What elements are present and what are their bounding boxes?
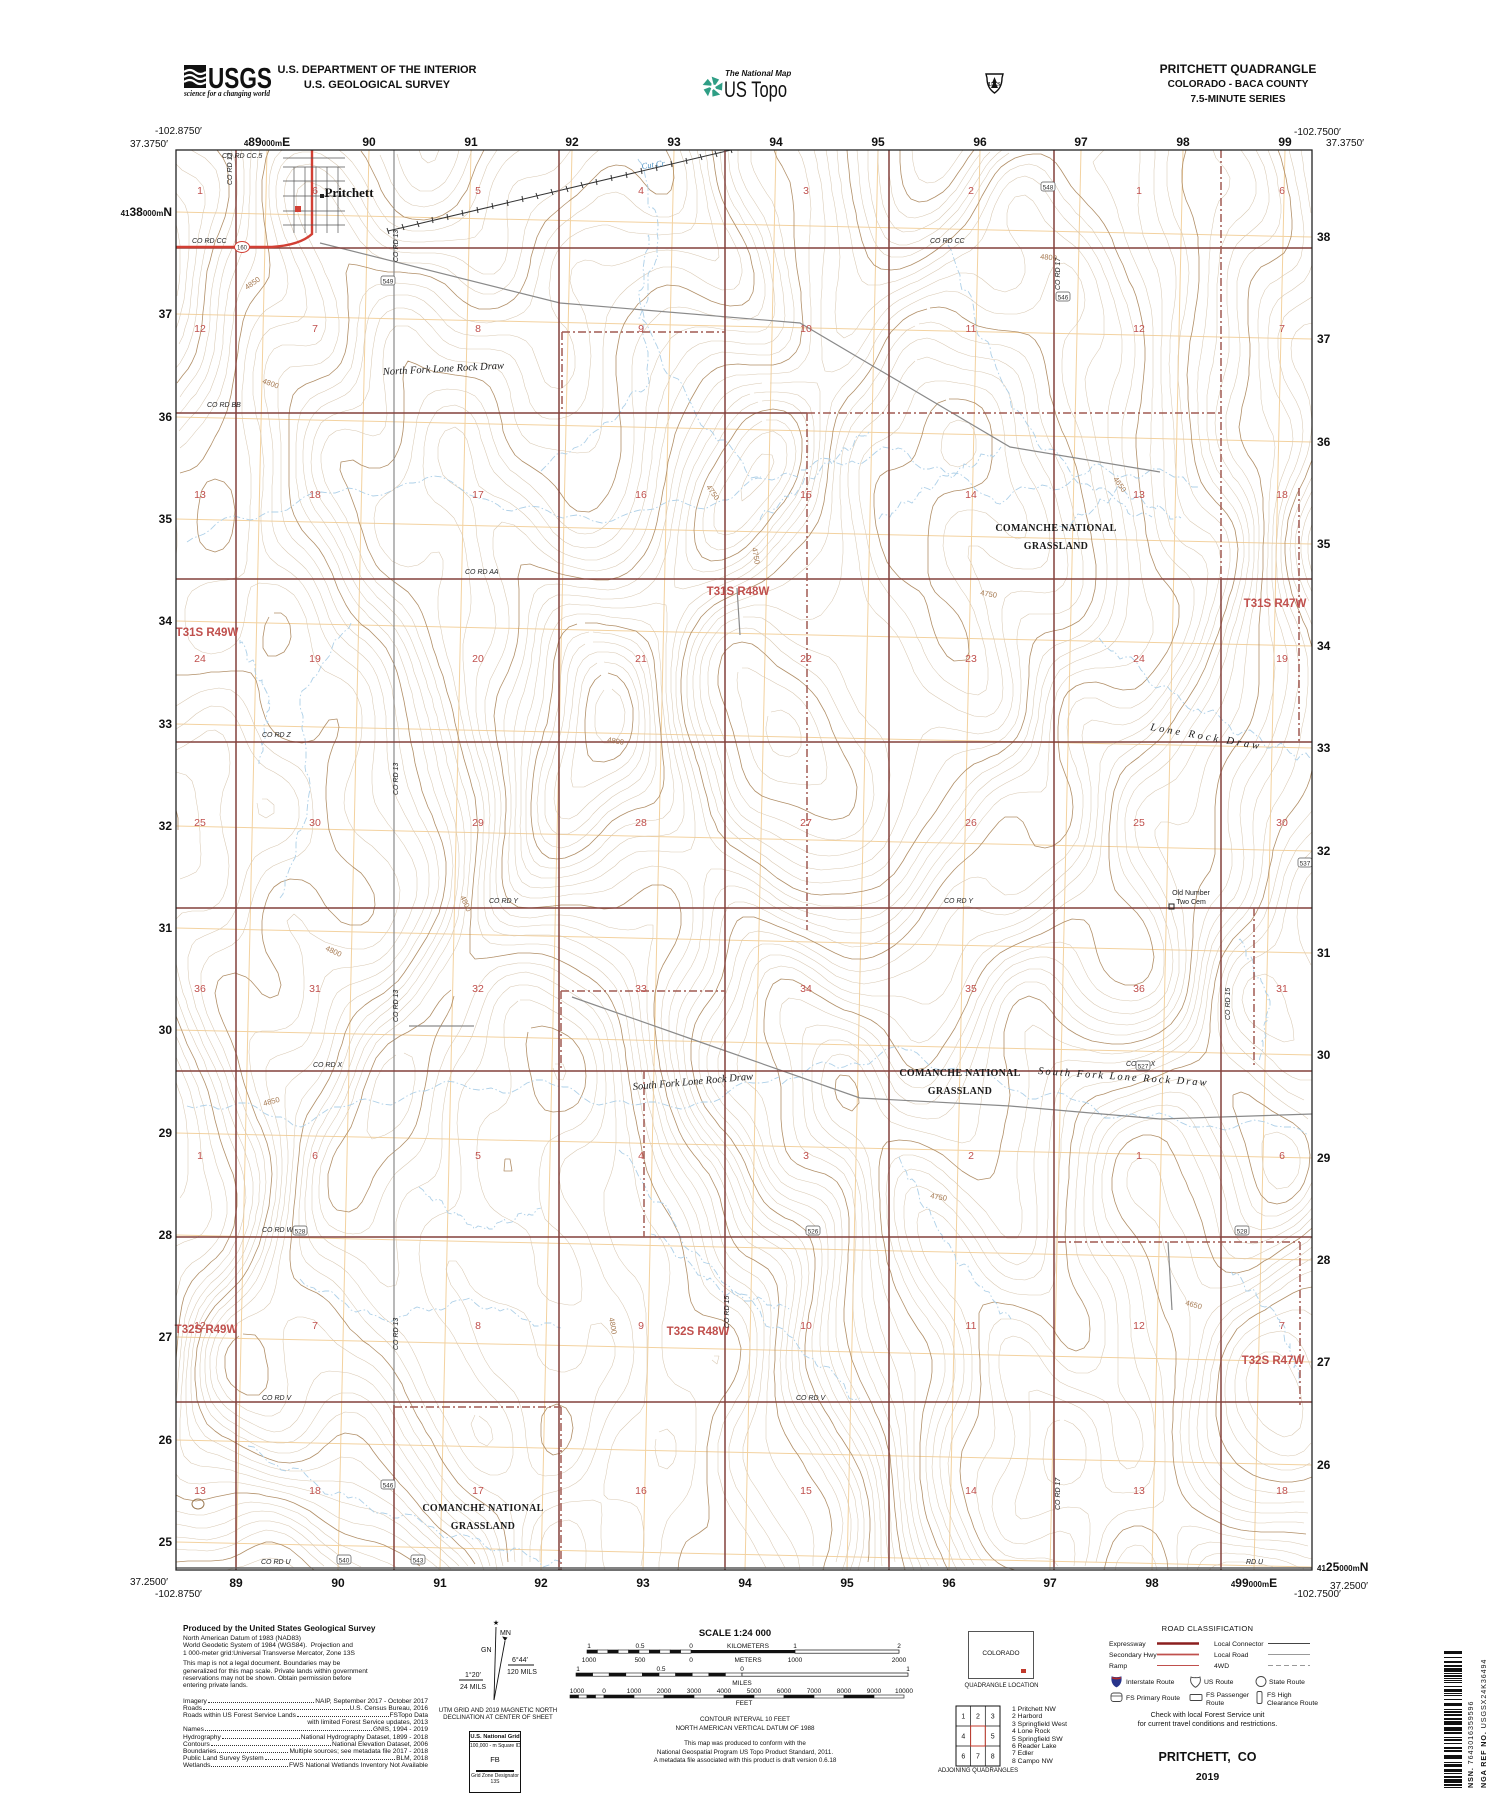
svg-text:37: 37: [159, 307, 173, 321]
svg-text:98: 98: [1145, 1576, 1159, 1590]
svg-text:13: 13: [194, 1485, 206, 1497]
svg-text:36: 36: [1317, 435, 1331, 449]
svg-text:2: 2: [976, 1714, 980, 1721]
svg-text:1: 1: [197, 1150, 203, 1162]
svg-text:31: 31: [309, 983, 321, 995]
svg-text:16: 16: [635, 489, 647, 501]
svg-text:1000: 1000: [582, 1657, 597, 1664]
svg-text:CO RD 17: CO RD 17: [1055, 1477, 1062, 1510]
svg-text:18: 18: [1276, 1485, 1288, 1497]
svg-text:CO RD V: CO RD V: [796, 1395, 827, 1402]
svg-text:537: 537: [1300, 861, 1311, 868]
svg-text:4750: 4750: [750, 547, 762, 565]
svg-text:528: 528: [1237, 1229, 1248, 1236]
svg-text:Lone Rock Draw: Lone Rock Draw: [1148, 722, 1262, 753]
svg-text:CO RD W: CO RD W: [262, 1227, 295, 1234]
svg-text:FS High: FS High: [1267, 1692, 1292, 1699]
svg-text:9: 9: [638, 323, 644, 335]
svg-text:35: 35: [159, 512, 173, 526]
svg-text:28: 28: [635, 817, 647, 829]
svg-text:29: 29: [1317, 1151, 1331, 1165]
svg-text:4138000mN: 4138000mN: [121, 205, 172, 219]
svg-text:Expressway: Expressway: [1109, 1641, 1146, 1648]
svg-text:1: 1: [906, 1666, 910, 1673]
svg-text:28: 28: [159, 1228, 173, 1242]
svg-text:34: 34: [159, 614, 173, 628]
svg-text:489000mE: 489000mE: [244, 135, 290, 149]
svg-text:33: 33: [1317, 741, 1331, 755]
svg-text:T32S R49W: T32S R49W: [175, 1324, 238, 1336]
svg-text:31: 31: [159, 921, 173, 935]
svg-text:30: 30: [159, 1023, 173, 1037]
svg-text:7000: 7000: [807, 1688, 822, 1695]
svg-text:6: 6: [1279, 1150, 1285, 1162]
svg-text:CO RD U: CO RD U: [261, 1559, 292, 1566]
svg-text:37.3750′: 37.3750′: [1326, 138, 1364, 149]
svg-text:0.5: 0.5: [635, 1643, 644, 1650]
svg-text:COMANCHE NATIONAL: COMANCHE NATIONAL: [899, 1068, 1020, 1079]
svg-text:4WD: 4WD: [1214, 1663, 1229, 1670]
svg-text:526: 526: [808, 1229, 819, 1236]
svg-text:GRASSLAND: GRASSLAND: [451, 1521, 515, 1532]
svg-text:24: 24: [1133, 653, 1145, 665]
svg-text:11: 11: [966, 1320, 977, 1332]
svg-text:4125000mN: 4125000mN: [1317, 1560, 1368, 1574]
svg-text:91: 91: [464, 135, 478, 149]
svg-text:25: 25: [1133, 817, 1145, 829]
svg-text:38: 38: [1317, 230, 1331, 244]
svg-text:CO RD CC: CO RD CC: [930, 238, 966, 245]
svg-text:92: 92: [534, 1576, 548, 1590]
svg-text:33: 33: [159, 717, 173, 731]
svg-text:5000: 5000: [747, 1688, 762, 1695]
svg-text:1: 1: [576, 1666, 580, 1673]
svg-text:CO RD 13: CO RD 13: [393, 230, 400, 262]
svg-text:13: 13: [1133, 489, 1145, 501]
svg-text:4750: 4750: [980, 588, 998, 600]
svg-text:CO RD Z: CO RD Z: [262, 732, 292, 739]
svg-text:15: 15: [800, 489, 812, 501]
svg-text:CO RD 13: CO RD 13: [393, 990, 400, 1022]
svg-text:1: 1: [587, 1643, 591, 1650]
svg-text:-102.7500′: -102.7500′: [1294, 127, 1341, 138]
svg-text:7: 7: [1279, 1320, 1285, 1332]
svg-text:500: 500: [635, 1657, 646, 1664]
svg-text:6°44′: 6°44′: [512, 1656, 528, 1664]
svg-text:12: 12: [194, 323, 206, 335]
svg-text:549: 549: [383, 279, 394, 286]
svg-text:36: 36: [1133, 983, 1145, 995]
svg-text:4000: 4000: [717, 1688, 732, 1695]
svg-text:4800: 4800: [607, 1317, 619, 1335]
svg-text:METERS: METERS: [734, 1657, 762, 1664]
svg-text:CO RD 13: CO RD 13: [393, 1318, 400, 1350]
svg-text:CO RD AA: CO RD AA: [465, 569, 499, 576]
svg-text:1: 1: [1136, 185, 1142, 197]
svg-text:6000: 6000: [777, 1688, 792, 1695]
svg-text:CO RD 15: CO RD 15: [724, 1296, 731, 1328]
svg-text:KILOMETERS: KILOMETERS: [727, 1643, 770, 1650]
svg-text:4750: 4750: [704, 483, 721, 502]
svg-text:Ramp: Ramp: [1109, 1663, 1127, 1670]
svg-text:2000: 2000: [892, 1657, 907, 1664]
svg-text:MILES: MILES: [732, 1680, 752, 1687]
svg-text:5: 5: [991, 1734, 995, 1741]
svg-text:NSN. 7643016359596: NSN. 7643016359596: [1466, 1701, 1475, 1788]
svg-text:CO RD CC: CO RD CC: [192, 238, 228, 245]
svg-text:4800: 4800: [458, 894, 473, 913]
svg-text:546: 546: [383, 1483, 394, 1490]
svg-text:1: 1: [793, 1643, 797, 1650]
svg-text:36: 36: [194, 983, 206, 995]
svg-text:CO RD Y: CO RD Y: [489, 898, 519, 905]
svg-text:27: 27: [1317, 1355, 1331, 1369]
svg-text:89: 89: [229, 1576, 243, 1590]
svg-text:11: 11: [966, 323, 977, 335]
svg-text:4800: 4800: [1040, 252, 1057, 262]
svg-text:90: 90: [331, 1576, 345, 1590]
svg-text:1: 1: [961, 1714, 965, 1721]
svg-text:23: 23: [965, 653, 977, 665]
svg-text:GRASSLAND: GRASSLAND: [1024, 541, 1088, 552]
svg-text:CO RD 15: CO RD 15: [1225, 988, 1232, 1020]
svg-text:CO RD X: CO RD X: [313, 1062, 343, 1069]
svg-text:4800: 4800: [324, 944, 343, 959]
svg-text:21: 21: [635, 653, 647, 665]
svg-text:35: 35: [965, 983, 977, 995]
svg-text:10: 10: [800, 323, 812, 335]
svg-text:8: 8: [475, 323, 481, 335]
svg-text:26: 26: [159, 1433, 173, 1447]
svg-text:Local Road: Local Road: [1214, 1652, 1249, 1659]
svg-text:3: 3: [991, 1714, 995, 1721]
svg-text:0: 0: [689, 1643, 693, 1650]
svg-text:546: 546: [1058, 295, 1069, 302]
svg-text:17: 17: [472, 1485, 484, 1497]
svg-text:19: 19: [309, 653, 321, 665]
svg-text:14: 14: [965, 489, 977, 501]
svg-text:36: 36: [159, 410, 173, 424]
svg-text:13: 13: [194, 489, 206, 501]
svg-text:4850: 4850: [243, 275, 262, 292]
svg-text:-102.8750′: -102.8750′: [155, 126, 202, 137]
svg-text:10: 10: [800, 1320, 812, 1332]
svg-text:94: 94: [769, 135, 783, 149]
svg-text:0: 0: [602, 1688, 606, 1695]
svg-text:RD U: RD U: [1246, 1559, 1264, 1566]
svg-text:25: 25: [194, 817, 206, 829]
svg-text:91: 91: [433, 1576, 447, 1590]
svg-text:24: 24: [194, 653, 206, 665]
svg-text:31: 31: [1317, 946, 1331, 960]
svg-text:FS Passenger: FS Passenger: [1206, 1692, 1250, 1699]
svg-text:33: 33: [635, 983, 647, 995]
svg-text:26: 26: [965, 817, 977, 829]
svg-text:32: 32: [159, 819, 173, 833]
svg-text:NGA REF NO. USGSX24K36494: NGA REF NO. USGSX24K36494: [1479, 1659, 1488, 1788]
svg-text:T31S R49W: T31S R49W: [176, 627, 239, 639]
svg-text:95: 95: [871, 135, 885, 149]
svg-text:29: 29: [159, 1126, 173, 1140]
svg-text:27: 27: [800, 817, 812, 829]
svg-text:-102.8750′: -102.8750′: [155, 1589, 202, 1600]
svg-text:26: 26: [1317, 1458, 1331, 1472]
svg-text:0: 0: [689, 1657, 693, 1664]
svg-text:25: 25: [159, 1535, 173, 1549]
svg-text:13: 13: [1133, 1485, 1145, 1497]
svg-text:3000: 3000: [687, 1688, 702, 1695]
svg-text:528: 528: [295, 1229, 306, 1236]
svg-text:1000: 1000: [788, 1657, 803, 1664]
svg-text:2: 2: [897, 1643, 901, 1650]
svg-text:GN: GN: [481, 1647, 492, 1654]
svg-text:7: 7: [976, 1754, 980, 1761]
svg-text:12: 12: [1133, 1320, 1145, 1332]
svg-text:35: 35: [1317, 537, 1331, 551]
svg-text:16: 16: [635, 1485, 647, 1497]
svg-text:37.2500′: 37.2500′: [130, 1577, 168, 1588]
svg-text:2: 2: [968, 1150, 974, 1162]
svg-text:4650: 4650: [1184, 1298, 1202, 1311]
svg-text:1°20′: 1°20′: [465, 1671, 481, 1679]
svg-text:96: 96: [973, 135, 987, 149]
svg-text:7: 7: [312, 323, 318, 335]
svg-text:Route: Route: [1206, 1700, 1224, 1707]
svg-text:27: 27: [159, 1330, 173, 1344]
svg-text:2: 2: [968, 185, 974, 197]
svg-text:T31S R47W: T31S R47W: [1244, 598, 1307, 610]
svg-text:4850: 4850: [262, 1095, 280, 1108]
svg-text:2000: 2000: [657, 1688, 672, 1695]
svg-text:T32S R47W: T32S R47W: [1242, 1355, 1305, 1367]
svg-text:19: 19: [1276, 653, 1288, 665]
svg-text:Pritchett: Pritchett: [324, 185, 374, 200]
svg-text:30: 30: [309, 817, 321, 829]
svg-text:30: 30: [1317, 1048, 1331, 1062]
svg-text:8: 8: [475, 1320, 481, 1332]
svg-text:95: 95: [840, 1576, 854, 1590]
svg-text:9: 9: [638, 1320, 644, 1332]
svg-text:7: 7: [312, 1320, 318, 1332]
svg-text:0.5: 0.5: [656, 1666, 665, 1673]
svg-text:31: 31: [1276, 983, 1288, 995]
svg-text:US Route: US Route: [1204, 1679, 1234, 1686]
svg-text:T31S R48W: T31S R48W: [707, 586, 770, 598]
svg-text:90: 90: [362, 135, 376, 149]
svg-text:4650: 4650: [1111, 475, 1128, 494]
svg-text:18: 18: [309, 489, 321, 501]
svg-text:6: 6: [312, 185, 318, 197]
svg-text:CO RD Y: CO RD Y: [944, 898, 974, 905]
svg-text:4750: 4750: [930, 1191, 948, 1203]
svg-text:1000: 1000: [570, 1688, 585, 1695]
svg-text:98: 98: [1176, 135, 1190, 149]
svg-text:99: 99: [1278, 135, 1292, 149]
svg-text:MN: MN: [500, 1630, 511, 1637]
svg-text:22: 22: [800, 653, 812, 665]
svg-text:FEET: FEET: [736, 1700, 753, 1705]
svg-text:7: 7: [1279, 323, 1285, 335]
svg-text:1: 1: [197, 185, 203, 197]
svg-text:1: 1: [1136, 1150, 1142, 1162]
svg-text:6: 6: [312, 1150, 318, 1162]
svg-text:4: 4: [638, 1150, 644, 1162]
svg-text:1000: 1000: [627, 1688, 642, 1695]
svg-text:Clearance Route: Clearance Route: [1267, 1700, 1318, 1707]
svg-text:3: 3: [803, 1150, 809, 1162]
svg-text:3: 3: [803, 185, 809, 197]
svg-text:97: 97: [1043, 1576, 1057, 1590]
svg-text:527: 527: [1138, 1064, 1149, 1071]
svg-text:17: 17: [472, 489, 484, 501]
svg-text:CO RD 13: CO RD 13: [393, 763, 400, 795]
svg-text:92: 92: [565, 135, 579, 149]
svg-text:Two Cem: Two Cem: [1176, 899, 1206, 906]
svg-text:10000: 10000: [895, 1688, 913, 1695]
svg-text:FS Primary Route: FS Primary Route: [1126, 1695, 1180, 1702]
svg-text:4: 4: [638, 185, 644, 197]
svg-text:9000: 9000: [867, 1688, 882, 1695]
svg-text:12: 12: [1133, 323, 1145, 335]
svg-text:14: 14: [965, 1485, 977, 1497]
svg-text:37.3750′: 37.3750′: [130, 139, 168, 150]
svg-text:24 MILS: 24 MILS: [460, 1684, 486, 1691]
svg-text:160: 160: [237, 246, 248, 252]
svg-text:37: 37: [1317, 332, 1331, 346]
svg-text:28: 28: [1317, 1253, 1331, 1267]
svg-text:Secondary Hwy: Secondary Hwy: [1109, 1652, 1157, 1659]
svg-text:5: 5: [475, 185, 481, 197]
svg-text:34: 34: [1317, 639, 1331, 653]
svg-text:97: 97: [1074, 135, 1088, 149]
svg-text:Local Connector: Local Connector: [1214, 1641, 1264, 1648]
svg-text:Interstate Route: Interstate Route: [1126, 1679, 1175, 1686]
svg-text:North Fork Lone Rock Draw: North Fork Lone Rock Draw: [382, 361, 505, 378]
svg-text:4800: 4800: [607, 735, 625, 747]
svg-text:★: ★: [493, 1619, 499, 1627]
svg-text:T32S R48W: T32S R48W: [667, 1326, 730, 1338]
svg-text:18: 18: [309, 1485, 321, 1497]
svg-text:30: 30: [1276, 817, 1288, 829]
svg-text:15: 15: [800, 1485, 812, 1497]
svg-text:6: 6: [961, 1754, 965, 1761]
svg-text:32: 32: [472, 983, 484, 995]
svg-text:94: 94: [738, 1576, 752, 1590]
svg-text:120 MILS: 120 MILS: [507, 1669, 537, 1676]
svg-text:0: 0: [740, 1666, 744, 1673]
svg-text:Cut Cr: Cut Cr: [641, 158, 666, 171]
svg-text:93: 93: [667, 135, 681, 149]
svg-text:93: 93: [636, 1576, 650, 1590]
svg-text:34: 34: [800, 983, 812, 995]
svg-text:20: 20: [472, 653, 484, 665]
svg-text:Old Number: Old Number: [1172, 890, 1210, 897]
svg-text:COMANCHE NATIONAL: COMANCHE NATIONAL: [422, 1503, 543, 1514]
svg-text:COMANCHE NATIONAL: COMANCHE NATIONAL: [995, 523, 1116, 534]
svg-text:548: 548: [1043, 185, 1054, 192]
svg-text:499000mE: 499000mE: [1231, 1576, 1277, 1590]
svg-text:5: 5: [475, 1150, 481, 1162]
svg-text:CO RD BB: CO RD BB: [207, 402, 241, 409]
svg-text:8000: 8000: [837, 1688, 852, 1695]
svg-text:96: 96: [942, 1576, 956, 1590]
svg-text:32: 32: [1317, 844, 1331, 858]
svg-text:37.2500′: 37.2500′: [1330, 1581, 1368, 1592]
svg-text:540: 540: [339, 1558, 350, 1565]
svg-text:State Route: State Route: [1269, 1679, 1305, 1686]
svg-text:4: 4: [961, 1734, 965, 1741]
svg-text:29: 29: [472, 817, 484, 829]
svg-text:CO RD 12: CO RD 12: [227, 153, 234, 185]
svg-text:6: 6: [1279, 185, 1285, 197]
svg-text:South Fork Lone Rock Draw: South Fork Lone Rock Draw: [632, 1072, 753, 1093]
svg-text:South Fork Lone Rock Draw: South Fork Lone Rock Draw: [1038, 1066, 1209, 1089]
svg-text:CO RD V: CO RD V: [262, 1395, 293, 1402]
svg-text:GRASSLAND: GRASSLAND: [928, 1086, 992, 1097]
svg-text:8: 8: [991, 1754, 995, 1761]
svg-text:543: 543: [413, 1558, 424, 1565]
svg-text:18: 18: [1276, 489, 1288, 501]
